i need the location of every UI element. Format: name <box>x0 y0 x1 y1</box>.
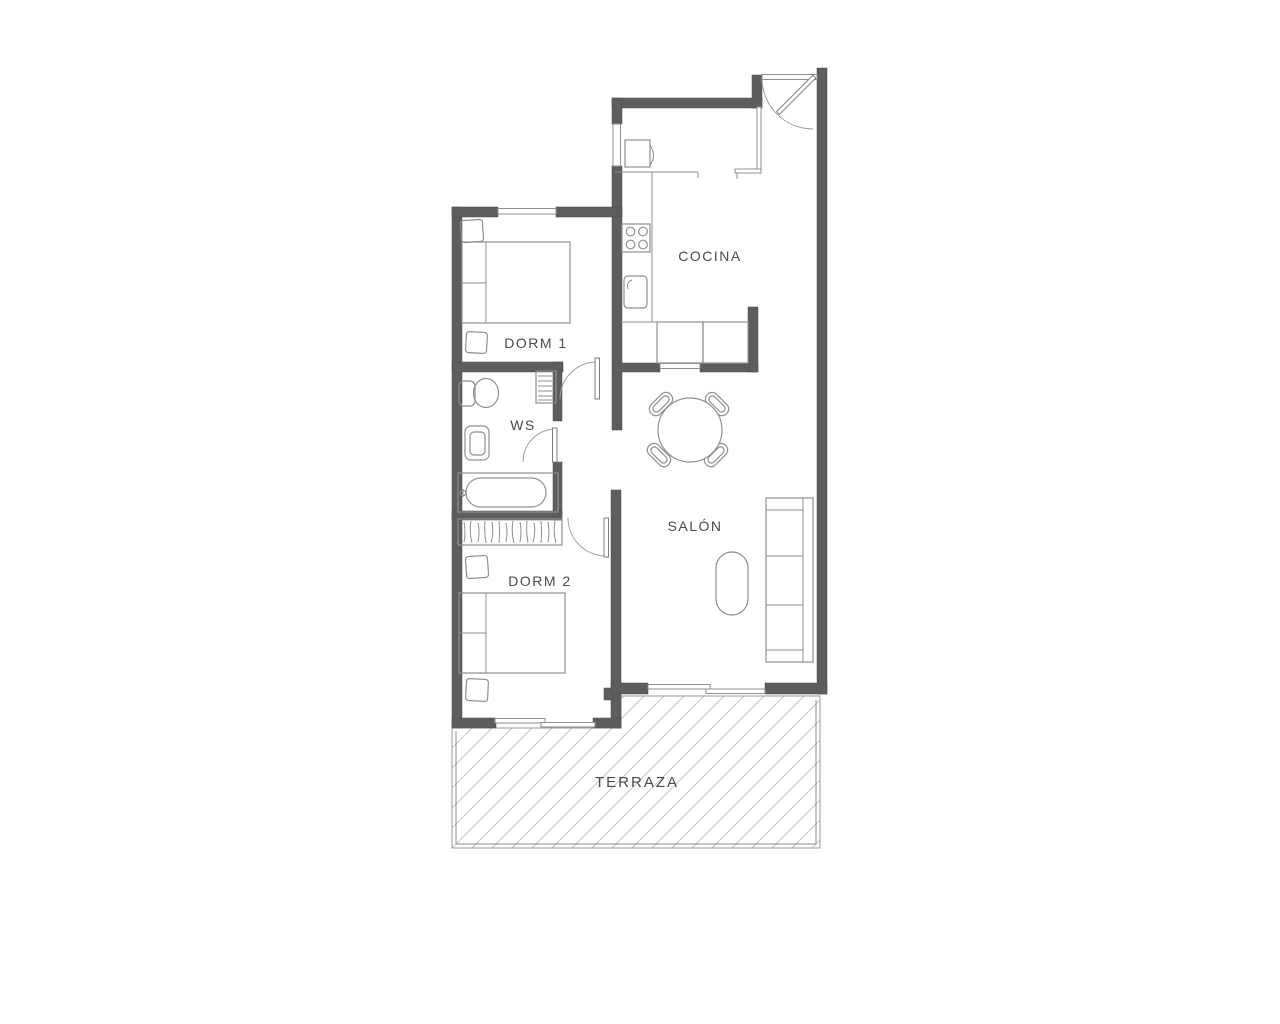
wall-kitchen-left-post <box>612 98 622 124</box>
label-ws: WS <box>510 417 536 433</box>
dorm2-nightstand-top <box>465 555 488 578</box>
dorm1-door-leaf <box>595 358 600 399</box>
kitchen-fridge-mark <box>628 280 633 289</box>
wall-salon-bottom-a <box>611 683 648 694</box>
window-kitchen <box>613 124 621 166</box>
label-terraza: TERRAZA <box>595 774 679 791</box>
dorm2-door-leaf <box>604 518 609 557</box>
dorm1-nightstand-bottom <box>465 331 487 353</box>
ws-door-arc <box>523 429 556 462</box>
dorm2-door <box>568 518 609 557</box>
wall-entry-post <box>752 75 762 108</box>
label-cocina: COCINA <box>678 248 741 264</box>
window-dorm2-slider-pane1 <box>495 719 545 724</box>
sofa <box>766 498 813 662</box>
toilet <box>459 379 499 408</box>
label-dorm2: DORM 2 <box>508 573 571 589</box>
wall-kitchen-se-post <box>748 307 758 372</box>
dining-table <box>658 398 722 462</box>
kitchen-appliance-dishwasher <box>703 322 748 363</box>
floorplan-drawing: COCINA DORM 1 WS SALÓN DORM 2 TERRAZA <box>0 0 1280 1024</box>
wall-dorm2-bottom-a <box>452 718 496 728</box>
wall-left-outer <box>452 207 462 728</box>
wall-dorm1-top-b <box>556 207 622 217</box>
kitchen-appliance-oven <box>657 322 703 363</box>
dorm1-furniture <box>460 219 570 353</box>
window-dorm1 <box>498 209 556 215</box>
wardrobe-hatch-lines <box>464 521 556 543</box>
label-salon: SALÓN <box>668 518 723 534</box>
window-salon-slider-pane2 <box>706 689 765 694</box>
kitchen-stove <box>622 224 650 252</box>
window-dorm2-slider-pane2 <box>541 723 595 728</box>
entry-door <box>762 75 816 129</box>
wall-kitchen-top <box>612 98 762 108</box>
wall-kitchen-bottom-a <box>613 363 660 372</box>
coffee-table <box>716 552 748 615</box>
window-kitchen-hatch <box>660 364 700 369</box>
kitchen-fridge <box>624 276 647 308</box>
wall-kitchen-left <box>612 166 622 430</box>
doors <box>523 75 816 557</box>
window-salon-slider-pane1 <box>648 685 710 690</box>
wardrobe <box>458 519 562 545</box>
dorm1-bed <box>462 242 570 323</box>
wall-salon-bottom-b <box>765 683 827 694</box>
partition-hall-vertical <box>757 107 761 170</box>
floorplan-page: COCINA DORM 1 WS SALÓN DORM 2 TERRAZA <box>0 0 1280 1024</box>
wall-right-outer <box>817 68 827 694</box>
wall-dorm1-top-a <box>452 207 498 217</box>
dorm1-door-arc <box>560 362 597 399</box>
partition-hall-horizontal <box>735 169 761 173</box>
dorm2-bed <box>459 593 565 673</box>
wall-dorm2-bottom-b <box>593 718 621 728</box>
dorm2-nightstand-bottom <box>465 678 488 701</box>
entry-door-leaf <box>777 75 816 114</box>
ws-door <box>523 428 557 462</box>
ws-sink <box>465 426 489 460</box>
dorm1-nightstand-top <box>460 219 483 242</box>
bathtub <box>458 473 558 512</box>
ws-door-leaf <box>553 428 558 462</box>
kitchen-sink <box>625 140 654 167</box>
dorm1-door <box>560 358 600 399</box>
label-dorm1: DORM 1 <box>504 335 567 351</box>
dorm2-door-arc <box>568 518 606 556</box>
ws-fixtures <box>458 371 558 512</box>
